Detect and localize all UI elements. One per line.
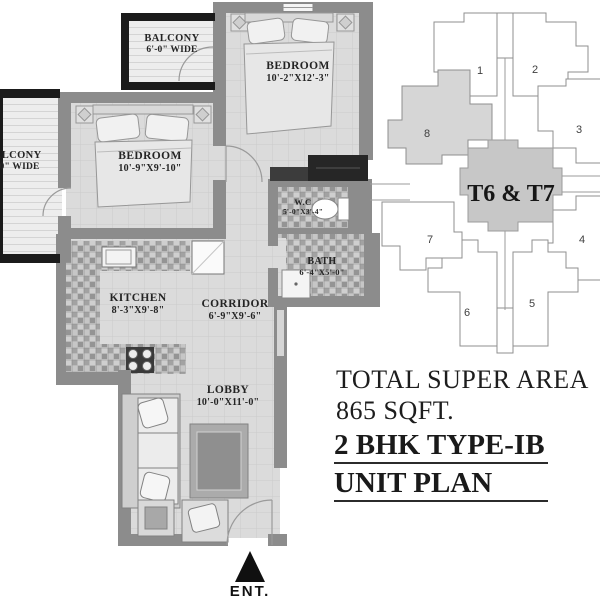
wall [58, 92, 71, 188]
balcony-frame [0, 89, 60, 98]
stove-burner [143, 362, 152, 371]
pillow [247, 18, 286, 45]
pillow [145, 114, 189, 142]
room-label-bedroom-left: BEDROOM 10'-9"X9'-10" [118, 150, 182, 175]
sofa-pillow [139, 471, 171, 503]
wall [268, 534, 287, 546]
keyplan-unit-number: 5 [529, 298, 535, 310]
pillow [291, 18, 329, 44]
room-label-bath: BATH 6'-4"X5'-0" [299, 256, 344, 277]
balcony-frame [121, 13, 129, 90]
keyplan-unit-number: 6 [464, 307, 470, 319]
keyplan-unit-number: 2 [532, 64, 538, 76]
room-dims: 5'-0"X3'-4" [283, 208, 323, 217]
keyplan-core-bottom [497, 308, 513, 353]
room-dims: 6'-0" WIDE [144, 45, 199, 56]
balcony-frame [121, 82, 215, 90]
room-name: BALCONY [144, 33, 199, 45]
key-plan: T6 & T7 1 2 3 4 5 6 7 8 [370, 0, 600, 362]
wall [56, 372, 131, 385]
plan-title-line1: 2 BHK TYPE-IB [334, 429, 548, 464]
room-dims: 6'-9"X9'-6" [201, 311, 268, 323]
pillow [96, 114, 141, 143]
stool-top [145, 507, 167, 529]
stove-burner [143, 350, 152, 359]
room-label-wc: W.C 5'-0"X3'-4" [283, 198, 323, 216]
coffee-table-top [197, 432, 241, 490]
wall [213, 100, 226, 146]
room-label-kitchen: KITCHEN 8'-3"X9'-8" [109, 292, 166, 317]
stove-burner [129, 350, 138, 359]
unit-plan-page: T6 & T7 1 2 3 4 5 6 7 8 BALCONY 6'-0" WI… [0, 0, 600, 600]
room-dims: 10'-9"X9'-10" [118, 163, 182, 175]
balcony-frame [0, 89, 3, 263]
headboard [93, 105, 193, 114]
room-name: BATH [299, 256, 344, 268]
room-label-balcony-top: BALCONY 6'-0" WIDE [144, 33, 199, 56]
wall [348, 180, 372, 234]
wall [58, 228, 226, 239]
super-area-text: TOTAL SUPER AREA 865 SQFT. [336, 364, 589, 426]
room-dims: 10'-2"X12'-3" [266, 73, 330, 85]
keyplan-core-top [497, 13, 513, 58]
entrance-label: ENT. [230, 583, 271, 600]
keyplan-unit-number: 8 [424, 128, 430, 140]
keyplan-center-label: T6 & T7 [467, 181, 555, 207]
super-area-line2: 865 SQFT. [336, 395, 589, 426]
stove-burner [129, 362, 138, 371]
room-name: BALCONY [0, 150, 42, 162]
wall [276, 228, 372, 234]
room-label-balcony-left: BALCONY 6'-0" WIDE [0, 150, 42, 173]
wall [58, 92, 215, 103]
shower-drain [294, 282, 297, 285]
balcony-left-floor [0, 97, 62, 255]
keyplan-unit-number: 7 [427, 234, 433, 246]
wardrobe-shelf [270, 167, 308, 181]
toilet-tank [338, 198, 349, 220]
room-label-lobby: LOBBY 10'-0"X11'-0" [197, 384, 260, 409]
room-dims: 6'-0" WIDE [0, 162, 42, 173]
balcony-frame [121, 13, 215, 21]
corridor-window [277, 310, 284, 356]
super-area-line1: TOTAL SUPER AREA [336, 364, 589, 395]
balcony-frame [0, 254, 60, 263]
room-dims: 10'-0"X11'-0" [197, 397, 260, 409]
wall [274, 368, 287, 468]
blanket [244, 42, 334, 134]
plan-title: 2 BHK TYPE-IB UNIT PLAN [334, 429, 548, 505]
keyplan-unit-number: 1 [477, 65, 483, 77]
room-label-bedroom-top: BEDROOM 10'-2"X12'-3" [266, 60, 330, 85]
room-name: KITCHEN [109, 292, 166, 305]
wall [268, 238, 278, 246]
room-name: BEDROOM [266, 60, 330, 73]
room-label-corridor: CORRIDOR 6'-9"X9'-6" [201, 298, 268, 323]
room-name: CORRIDOR [201, 298, 268, 311]
keyplan-unit-number: 4 [579, 234, 585, 246]
room-dims: 8'-3"X9'-8" [109, 305, 166, 317]
room-name: BEDROOM [118, 150, 182, 163]
keyplan-unit-number: 3 [576, 124, 582, 136]
room-name: LOBBY [197, 384, 260, 397]
plan-title-line2: UNIT PLAN [334, 467, 548, 502]
entrance-arrow-icon [235, 551, 265, 582]
room-dims: 6'-4"X5'-0" [299, 268, 344, 278]
